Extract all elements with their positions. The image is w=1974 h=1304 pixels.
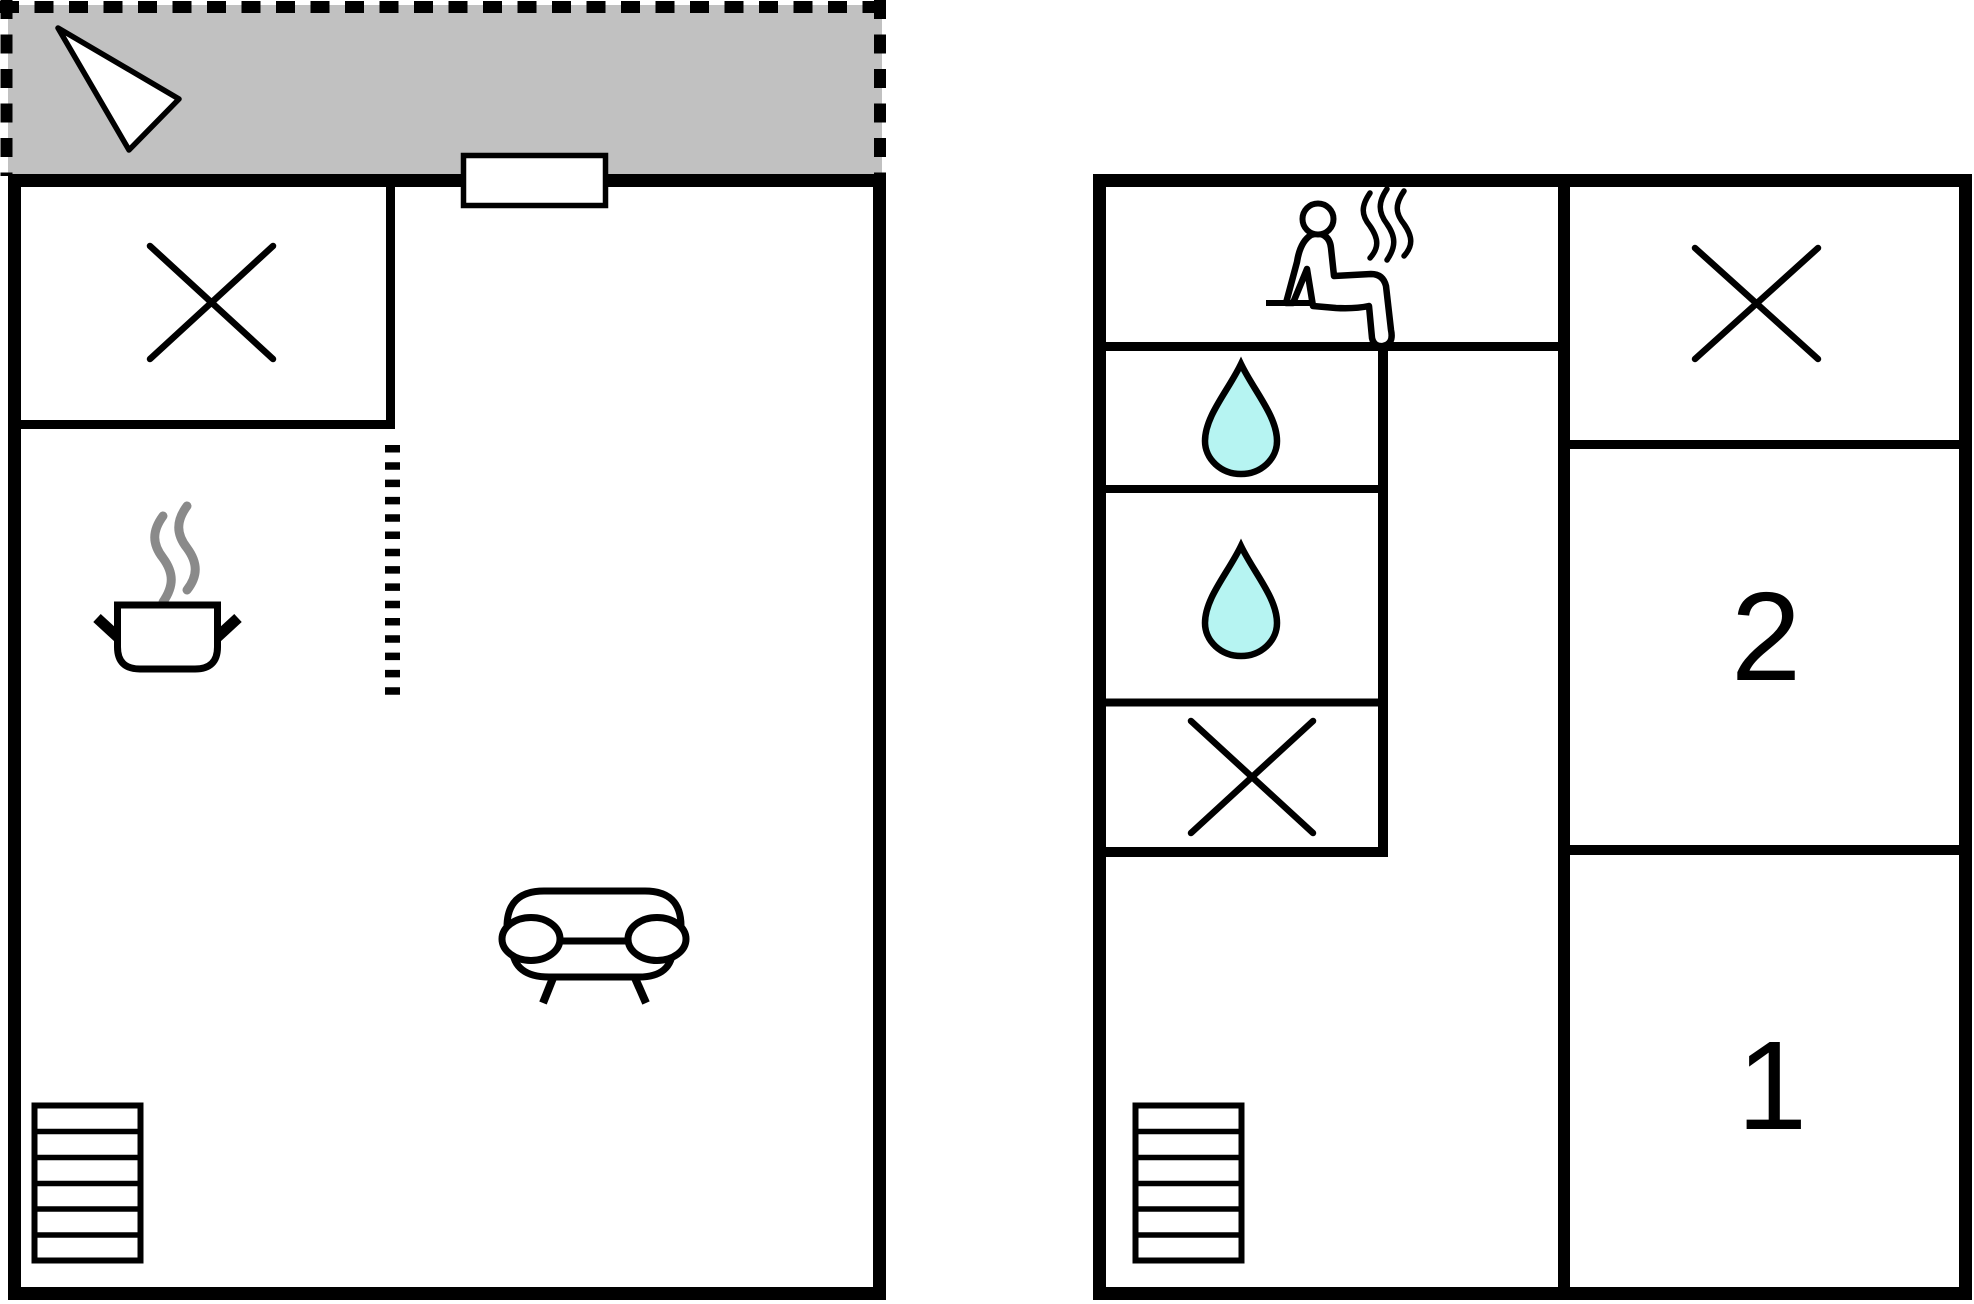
ground-floor-outer-wall	[15, 181, 880, 1294]
floorplan-drawing: 2 1	[0, 0, 1974, 1304]
floorplan-canvas: 2 1	[0, 0, 1974, 1304]
room-2-label: 2	[1731, 566, 1801, 707]
sauna-person-head	[1303, 204, 1334, 235]
ground-floor-plan	[0, 0, 886, 1294]
staircase-icon-upper	[1133, 1106, 1244, 1261]
window	[464, 156, 606, 206]
staircase-icon-ground	[32, 1106, 143, 1261]
room-1-label: 1	[1737, 1015, 1807, 1156]
upper-floor-plan: 2 1	[1096, 181, 1972, 1297]
